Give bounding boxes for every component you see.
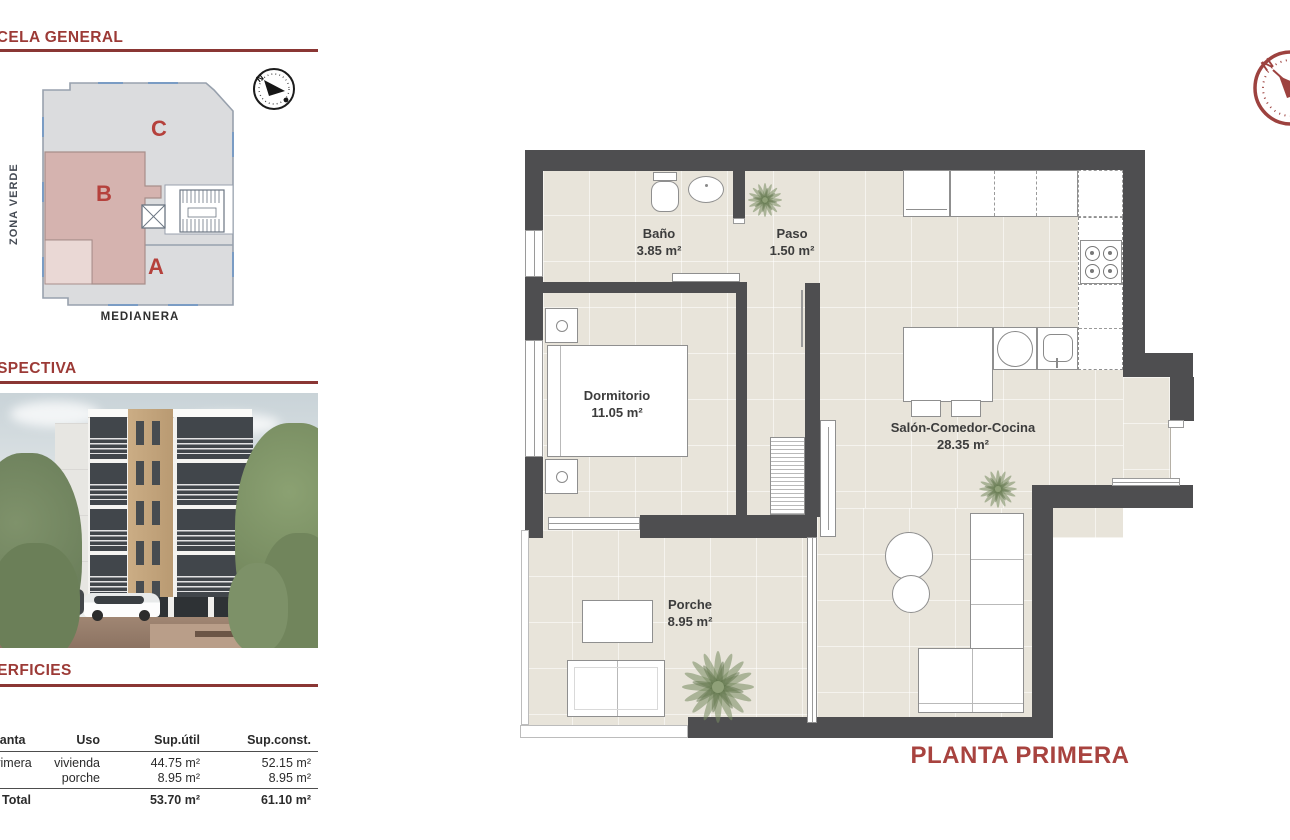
table-total-sup-util: 53.70 m²: [110, 793, 200, 807]
white-car: [84, 593, 160, 617]
zone-a-label: A: [148, 254, 164, 279]
door-sill: [733, 218, 745, 224]
table-cell-uso: porche: [40, 771, 100, 785]
room-area: 11.05 m²: [591, 405, 642, 420]
zone-c-label: C: [151, 116, 167, 141]
fridge: [903, 170, 950, 217]
stairs-icon: [180, 190, 224, 232]
table-cell-sup-const: 8.95 m²: [220, 771, 311, 785]
wall-segment: [1123, 150, 1145, 377]
plant-icon: [746, 181, 784, 219]
section-title-superficies: SUPERFICIES: [0, 662, 72, 680]
sofa: [918, 648, 1024, 713]
table-cell-sup-util: 8.95 m²: [110, 771, 200, 785]
window: [1112, 478, 1180, 486]
zone-b-label: B: [96, 181, 112, 206]
room-name: Porche: [668, 597, 712, 612]
section-title-perspectiva: PERSPECTIVA: [0, 360, 77, 378]
door-sill: [1168, 420, 1184, 428]
room-name: Dormitorio: [584, 388, 650, 403]
room-label-salon: Salón-Comedor-Cocina 28.35 m²: [883, 420, 1043, 454]
floor-plan: Baño 3.85 m² Paso 1.50 m² Dormitorio 11.…: [520, 145, 1210, 795]
kitchen-cabinet: [1078, 170, 1123, 217]
wall-segment: [640, 515, 817, 538]
wall-segment: [1145, 353, 1193, 377]
stove-burner-icon: [1085, 264, 1100, 279]
wall-segment: [736, 293, 747, 517]
room-area: 8.95 m²: [668, 614, 713, 629]
room-label-dormitorio: Dormitorio 11.05 m²: [557, 388, 677, 422]
porch-sofa: [567, 660, 665, 717]
room-area: 28.35 m²: [937, 437, 989, 452]
zone-b-annex: [45, 240, 92, 284]
table-total-label: Total: [2, 793, 72, 807]
sliding-door: [672, 273, 740, 282]
stove-burner-icon: [1085, 246, 1100, 261]
wall-segment: [1032, 485, 1193, 508]
toilet-icon: [651, 181, 679, 212]
medianera-label: MEDIANERA: [90, 311, 190, 323]
tree: [0, 543, 80, 648]
balcony: [90, 417, 127, 464]
divider-rule: [0, 49, 318, 52]
nightstand: [545, 308, 578, 343]
chair: [911, 400, 941, 417]
wall-segment: [525, 277, 543, 340]
table-header-sup-util: Sup.útil: [110, 733, 200, 747]
bathroom-sink-icon: [688, 176, 724, 203]
table-cell-sup-const: 52.15 m²: [220, 756, 311, 770]
window: [525, 230, 543, 277]
stove: [1080, 240, 1122, 284]
plan-sheet: { "sections": { "parcela_general": { "ti…: [0, 0, 1290, 840]
sliding-glass-door: [807, 537, 817, 723]
stove-burner-icon: [1103, 246, 1118, 261]
floor-nook: [1123, 377, 1171, 486]
wall-segment: [1170, 377, 1194, 421]
sheet-title: PLANTA PRIMERA: [885, 742, 1155, 770]
nightstand: [545, 459, 578, 494]
balcony: [90, 463, 127, 510]
sofa: [970, 513, 1024, 650]
window: [525, 340, 543, 457]
elevator-icon: [142, 205, 165, 228]
sliding-door: [820, 420, 836, 537]
site-plan: C B A: [28, 62, 240, 312]
room-label-bano: Baño 3.85 m²: [609, 226, 709, 260]
round-table: [892, 575, 930, 613]
room-label-porche: Porche 8.95 m²: [640, 597, 740, 631]
table-header-uso: Uso: [40, 733, 100, 747]
door-leaf: [801, 290, 803, 347]
round-table: [885, 532, 933, 580]
room-area: 1.50 m²: [770, 243, 815, 258]
building-tan-strip: [128, 409, 173, 613]
room-name: Salón-Comedor-Cocina: [891, 420, 1035, 435]
compass-icon: N: [1249, 46, 1290, 130]
dining-table: [903, 327, 993, 402]
bench: [195, 631, 235, 637]
palm-tree-icon: [678, 647, 758, 727]
wall-segment: [733, 169, 745, 218]
toilet-tank-icon: [653, 172, 677, 181]
room-area: 3.85 m²: [637, 243, 682, 258]
table-rule: [0, 751, 318, 752]
divider-rule: [0, 684, 318, 687]
kitchen-counter: [950, 170, 1078, 217]
room-name: Baño: [643, 226, 676, 241]
stove-burner-icon: [1103, 264, 1118, 279]
wall-segment: [543, 282, 747, 293]
table-header-sup-const: Sup.const.: [220, 733, 311, 747]
tree: [228, 563, 288, 648]
washing-machine: [993, 327, 1037, 370]
kitchen-sink: [1037, 327, 1078, 370]
room-name: Paso: [776, 226, 807, 241]
closet: [770, 437, 805, 515]
wall-segment: [805, 283, 820, 517]
table-cell-sup-util: 44.75 m²: [110, 756, 200, 770]
plant-icon: [977, 468, 1019, 510]
window: [548, 517, 640, 530]
porch-railing: [521, 530, 529, 725]
compass-icon: N: [251, 66, 297, 112]
table-total-sup-const: 61.10 m²: [220, 793, 311, 807]
chair: [951, 400, 981, 417]
building-render: [0, 393, 318, 648]
wall-segment: [525, 150, 1145, 171]
zona-verde-label: ZONA VERDE: [8, 135, 20, 245]
balcony: [90, 509, 127, 556]
wall-segment: [1032, 485, 1053, 738]
table-cell-uso: vivienda: [40, 756, 100, 770]
divider-rule: [0, 381, 318, 384]
balcony: [174, 417, 253, 464]
section-title-parcela: PARCELA GENERAL: [0, 29, 123, 47]
table-rule: [0, 788, 318, 789]
wall-segment: [525, 457, 543, 538]
porch-railing: [520, 725, 688, 738]
wall-segment: [525, 150, 543, 230]
room-label-paso: Paso 1.50 m²: [742, 226, 842, 260]
